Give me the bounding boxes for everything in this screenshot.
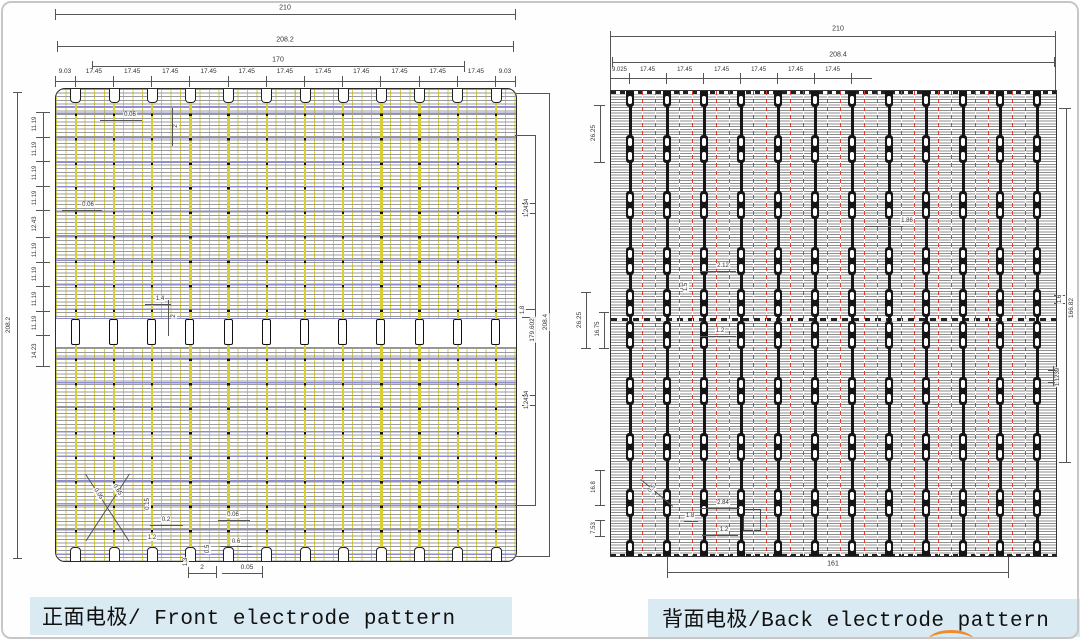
pad-hole [628,492,632,500]
back-solder-pad [959,540,967,557]
pad-hole [776,450,780,458]
back-solder-pad [774,247,782,275]
pad-hole [887,208,891,216]
dim-line [595,536,605,537]
back-solder-pad [811,135,819,163]
dim-line [1054,57,1055,67]
pad-hole [813,394,817,402]
red-centerline [827,91,828,556]
pad-hole [961,250,965,258]
pad-hole [813,264,817,272]
pad-hole [924,208,928,216]
dim-line [55,76,56,87]
front-top-notch [376,88,387,103]
pad-hole [665,380,669,388]
pad-hole [887,506,891,514]
front-bottom-notch [414,547,425,562]
dim-label: 11.19 [32,290,38,307]
back-solder-pad [626,321,634,349]
pad-hole [887,138,891,146]
pad-hole [998,138,1002,146]
dim-label: 210 [278,5,292,12]
dim-line [549,93,550,557]
dim-line [380,76,381,87]
dim-label: 12.43 [32,215,38,232]
pad-hole [776,338,780,346]
dim-label: 208.2 [275,37,295,44]
dim-line [55,81,515,82]
back-solder-pad [811,191,819,219]
pad-hole [665,450,669,458]
dim-line [113,76,114,87]
pad-hole [1035,324,1039,332]
pad-hole [739,338,743,346]
pad-hole [1035,338,1039,346]
dim-line [151,76,152,87]
pad-hole [1035,208,1039,216]
pad-hole [961,292,965,300]
front-solder-pad [262,319,271,345]
back-solder-pad [959,90,967,107]
red-centerline [864,91,865,556]
dim-line [515,556,550,557]
pad-hole [998,306,1002,314]
pad-hole [998,250,1002,258]
pad-hole [961,338,965,346]
dim-label: 17.45 [390,69,408,76]
back-solder-pad [626,540,634,557]
pad-hole [776,250,780,258]
pad-hole [961,543,965,551]
dim-line [522,405,535,406]
dim-line [612,57,613,67]
dim-line [595,505,605,506]
back-solder-pad [737,247,745,275]
pad-hole [739,292,743,300]
pad-hole [850,264,854,272]
pad-hole [887,380,891,388]
dim-line [228,76,229,87]
dim-line [595,520,605,521]
back-solder-pad [885,289,893,317]
red-centerline [716,91,717,556]
dim-line [667,572,1008,573]
back-solder-pad [1033,321,1041,349]
pad-hole [961,264,965,272]
pad-hole [813,338,817,346]
pad-hole [850,324,854,332]
pad-hole [739,492,743,500]
pad-hole [739,194,743,202]
back-top-edge-dash [611,91,1056,94]
pad-hole [628,543,632,551]
back-solder-pad [700,321,708,349]
red-centerline [655,91,656,556]
pad-hole [850,250,854,258]
back-solder-pad [811,90,819,107]
dim-line [522,309,535,310]
back-solder-pad [700,247,708,275]
pad-hole [924,194,928,202]
dim-line [188,566,189,578]
dim-label: 2 [199,565,205,572]
pad-hole [1035,492,1039,500]
pad-hole [702,380,706,388]
back-solder-pad [959,247,967,275]
dim-label: 11.19 [32,241,38,258]
pad-hole [739,436,743,444]
pad-hole [961,506,965,514]
dim-line [57,46,513,47]
pad-hole [739,324,743,332]
pad-hole [887,292,891,300]
front-bottom-notch [147,547,158,562]
front-top-notch [70,88,81,103]
back-solder-pad [774,540,782,557]
back-solder-pad [737,321,745,349]
dim-line [17,92,18,558]
pad-hole [813,292,817,300]
red-centerline [642,91,643,556]
dim-line [92,61,93,72]
pad-hole [924,324,928,332]
dim-label: 7.53 [591,521,597,535]
pad-hole [998,264,1002,272]
red-centerline [753,91,754,556]
red-centerline [938,91,939,556]
pad-hole [628,338,632,346]
back-solder-pad [700,433,708,461]
back-solder-pad [700,289,708,317]
dim-line [586,292,587,348]
dim-line [342,76,343,87]
pad-hole [813,324,817,332]
dim-line [600,105,601,162]
pad-hole [665,96,669,104]
back-solder-pad [811,247,819,275]
pad-hole [850,394,854,402]
pad-hole [776,152,780,160]
pad-hole [850,208,854,216]
pad-hole [924,250,928,258]
back-solder-pad [626,377,634,405]
back-solder-pad [848,289,856,317]
pad-hole [813,450,817,458]
pad-hole [665,492,669,500]
back-solder-pad [996,247,1004,275]
dim-line [36,311,50,312]
red-centerline [951,91,952,556]
dim-label: 208.4 [828,52,848,59]
pad-hole [924,306,928,314]
dim-line [581,292,591,293]
front-solder-pad [415,319,424,345]
back-solder-pad [885,433,893,461]
dim-line [629,73,630,84]
dim-line [610,36,1055,37]
red-centerline [803,91,804,556]
dim-line [535,135,536,506]
back-solder-pad [959,433,967,461]
back-solder-pad [996,191,1004,219]
pad-hole [887,338,891,346]
red-centerline [1025,91,1026,556]
pad-hole [776,394,780,402]
back-solder-pad [922,289,930,317]
dim-label: 17.45 [352,69,370,76]
pad-hole [998,450,1002,458]
back-solder-pad [885,377,893,405]
dim-line [599,312,609,313]
red-centerline [988,91,989,556]
pad-hole [628,264,632,272]
dim-label: 166.82 [1069,297,1076,319]
back-solder-pad [996,289,1004,317]
pad-hole [924,394,928,402]
back-solder-pad [700,540,708,557]
back-solder-pad [663,489,671,517]
dim-label: 17.45 [238,69,256,76]
pad-hole [628,450,632,458]
pad-hole [665,436,669,444]
pad-hole [665,324,669,332]
dim-label: 161 [826,561,840,568]
pad-hole [998,543,1002,551]
dim-label: 16.8 [591,480,597,494]
pad-hole [739,208,743,216]
pad-hole [739,96,743,104]
pad-hole [924,152,928,160]
back-solder-pad [848,191,856,219]
dim-line [522,203,535,204]
dim-line [55,9,56,20]
pad-hole [628,292,632,300]
pad-hole [776,324,780,332]
dim-line [612,62,1054,63]
back-solder-pad [959,135,967,163]
back-solder-pad [774,321,782,349]
pad-hole [961,450,965,458]
front-bottom-notch [338,547,349,562]
dim-line [513,41,514,52]
dim-line [594,105,605,106]
dim-label: 14.23 [32,342,38,359]
pad-hole [702,96,706,104]
pad-hole [1035,450,1039,458]
pad-hole [628,380,632,388]
front-solder-pad [224,319,233,345]
back-solder-pad [996,377,1004,405]
dim-label: 17.45 [85,69,103,76]
back-solder-pad [774,377,782,405]
dim-line [600,520,601,536]
dim-line [777,73,778,84]
back-solder-pad [811,289,819,317]
pad-hole [776,492,780,500]
pad-hole [998,506,1002,514]
front-bottom-notch [376,547,387,562]
pad-hole [1035,543,1039,551]
pad-hole [998,380,1002,388]
front-bottom-notch [70,547,81,562]
dim-line [522,213,535,214]
back-solder-pad [996,90,1004,107]
dim-line [610,78,872,79]
pad-hole [813,492,817,500]
dim-line [36,366,50,367]
pad-hole [665,543,669,551]
pad-hole [813,194,817,202]
pad-hole [998,208,1002,216]
front-top-notch [185,88,196,103]
dim-line [600,470,601,505]
pad-hole [998,492,1002,500]
front-solder-pad [300,319,309,345]
back-solder-pad [774,289,782,317]
pad-hole [850,152,854,160]
front-solder-pad [185,319,194,345]
dim-label: 1.2434 [524,198,530,218]
dim-line [43,112,44,367]
dim-label: 26.25 [591,124,598,142]
red-centerline [790,91,791,556]
back-solder-pad [922,135,930,163]
back-solder-pad [811,540,819,557]
dim-line [13,558,22,559]
dim-line [599,348,609,349]
pad-hole [998,194,1002,202]
pad-hole [813,306,817,314]
dim-line [581,348,591,349]
dim-line [36,237,50,238]
back-solder-pad [885,540,893,557]
back-solder-pad [1033,191,1041,219]
back-caption-text: 背面电极/Back electrode pattern [662,603,1049,633]
pad-hole [665,292,669,300]
back-solder-pad [848,433,856,461]
red-centerline [679,91,680,556]
front-bottom-notch [452,547,463,562]
back-solder-pad [1033,90,1041,107]
pad-hole [813,506,817,514]
back-solder-pad [922,321,930,349]
back-solder-pad [663,321,671,349]
dim-line [667,557,668,578]
pad-hole [739,450,743,458]
dim-label: 11.19 [32,165,38,182]
pad-hole [961,138,965,146]
pad-hole [961,194,965,202]
dim-line [515,135,536,136]
pad-hole [961,492,965,500]
back-solder-pad [848,135,856,163]
dim-label: 17.45 [750,67,767,73]
pad-hole [813,152,817,160]
dim-label: 208.4 [543,313,550,331]
pad-hole [1035,96,1039,104]
pad-hole [850,138,854,146]
pad-hole [924,543,928,551]
back-solder-pad [737,90,745,107]
back-solder-pad [663,247,671,275]
dim-line [1008,557,1009,578]
back-solder-pad [848,540,856,557]
pad-hole [776,506,780,514]
dim-label: 1.6 [1057,294,1063,304]
front-top-notch [261,88,272,103]
back-solder-pad [1033,135,1041,163]
pad-hole [665,264,669,272]
dim-line [189,76,190,87]
pad-hole [850,436,854,444]
dim-line [594,162,605,163]
front-bottom-notch [109,547,120,562]
pad-hole [850,338,854,346]
pad-hole [887,306,891,314]
pad-hole [1035,292,1039,300]
dim-line [419,76,420,87]
back-solder-pad [959,321,967,349]
back-solder-pad [700,191,708,219]
back-solder-pad [848,489,856,517]
back-solder-pad [663,540,671,557]
pad-hole [813,543,817,551]
dim-line [36,186,50,187]
pad-hole [850,543,854,551]
pad-hole [1035,138,1039,146]
pad-hole [702,194,706,202]
dim-line [36,137,50,138]
red-centerline [729,91,730,556]
back-solder-pad [737,135,745,163]
pad-hole [702,450,706,458]
back-solder-pad [959,191,967,219]
dim-line [515,93,550,94]
pad-hole [887,394,891,402]
pad-hole [1035,264,1039,272]
pad-hole [702,492,706,500]
pad-hole [665,250,669,258]
dim-line [262,566,263,578]
pad-hole [813,380,817,388]
dim-label: 9.025 [611,67,628,73]
dim-line [266,76,267,87]
dim-line [304,76,305,87]
back-solder-pad [996,540,1004,557]
pad-hole [813,138,817,146]
pad-hole [776,138,780,146]
red-centerline [901,91,902,556]
pad-hole [850,380,854,388]
dim-line [92,66,464,67]
back-solder-pad [737,289,745,317]
pad-hole [850,450,854,458]
front-top-notch [147,88,158,103]
dim-label: 26.25 [577,311,584,329]
dim-line [222,573,262,574]
back-solder-pad [848,321,856,349]
pad-hole [702,208,706,216]
dim-label: 0.05 [240,565,255,572]
pad-hole [1035,306,1039,314]
back-solder-pad [663,433,671,461]
back-solder-pad [922,540,930,557]
back-solder-pad [922,90,930,107]
back-solder-pad [885,135,893,163]
pad-hole [665,194,669,202]
back-solder-pad [774,191,782,219]
pad-hole [961,394,965,402]
